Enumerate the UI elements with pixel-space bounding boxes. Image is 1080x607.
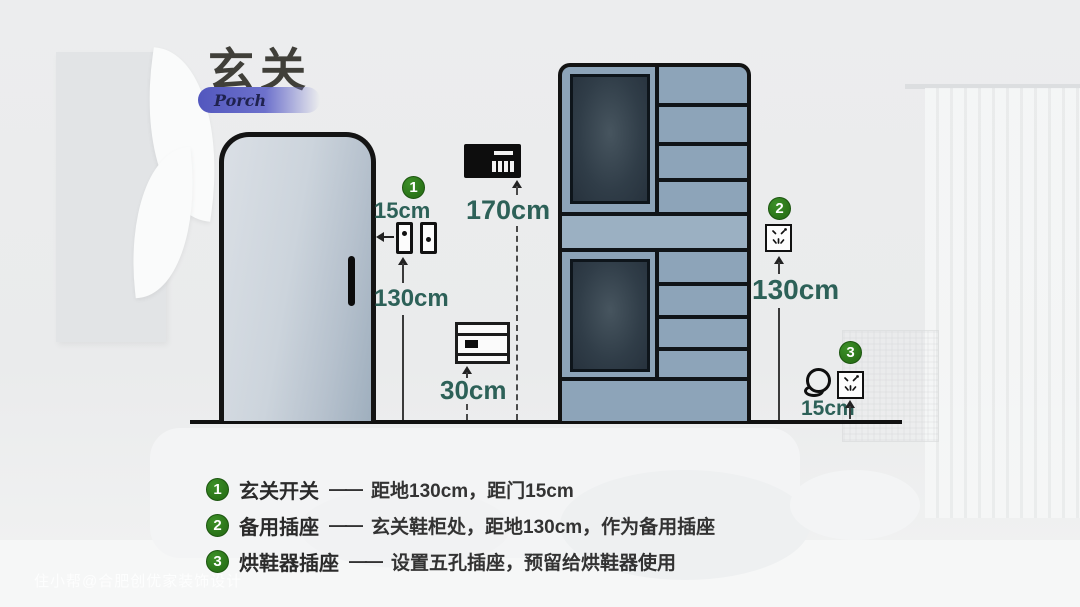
legend-row-1: 1 玄关开关 —— 距地130cm，距门15cm: [206, 475, 574, 504]
cabinet-glass-door-bottom: [570, 259, 650, 372]
socket-holes: [767, 226, 790, 250]
legend-label: 备用插座: [239, 511, 319, 540]
legend-desc: 距地130cm，距门15cm: [371, 476, 574, 503]
legend-label: 玄关开关: [239, 475, 319, 504]
dim-doorbell-height: 170cm: [466, 195, 550, 226]
marker-1-number: 1: [409, 179, 417, 196]
cabinet-shelf-line: [655, 315, 747, 319]
gap-arrow-line: [382, 236, 394, 238]
shoe-cabinet: [558, 63, 751, 421]
legend-dash: ——: [329, 479, 361, 500]
legend-dash: ——: [329, 515, 361, 536]
wall-switch-icon: [396, 222, 413, 254]
five-hole-socket-icon: [765, 224, 792, 252]
legend-number: 2: [213, 517, 221, 534]
legend-number: 1: [213, 481, 221, 498]
subtitle-text: Porch: [214, 91, 266, 110]
socket-box-icon: [455, 322, 510, 364]
legend-dash: ——: [349, 551, 381, 572]
dim-dash-line: [516, 226, 518, 420]
legend-row-2: 2 备用插座 —— 玄关鞋柜处，距地130cm，作为备用插座: [206, 511, 715, 540]
cabinet-middle-band: [562, 216, 747, 248]
cabinet-divider: [655, 67, 659, 212]
legend-marker-2: 2: [206, 514, 229, 537]
legend-label: 烘鞋器插座: [239, 547, 339, 576]
vertical-blinds: [925, 88, 1080, 518]
porch-infographic: 玄关 Porch 1 15cm 130cm: [0, 0, 1080, 607]
dim-socket2-height: 130cm: [752, 274, 839, 306]
box-slot: [465, 340, 478, 348]
wall-switch-icon: [420, 222, 437, 254]
cabinet-shelf-line: [562, 248, 747, 252]
doorbell-screen: [494, 151, 513, 155]
legend-row-3: 3 烘鞋器插座 —— 设置五孔插座，预留给烘鞋器使用: [206, 547, 676, 576]
marker-3-badge: 3: [839, 341, 862, 364]
dim-line: [402, 315, 404, 420]
dim-line: [402, 263, 404, 283]
shoe-dryer-icon: [806, 368, 831, 393]
cabinet-shelf-line: [655, 347, 747, 351]
door-handle: [348, 256, 355, 306]
legend-marker-1: 1: [206, 478, 229, 501]
socket-holes: [839, 373, 862, 397]
subtitle-badge: Porch: [198, 87, 320, 113]
cabinet-shelf-line: [655, 142, 747, 146]
switch-dot: [426, 237, 431, 242]
dim-line: [778, 308, 780, 420]
cabinet-shelf-line: [655, 282, 747, 286]
marker-3-number: 3: [846, 344, 854, 361]
side-table: [790, 470, 920, 540]
watermark: 住小帮@合肥创优家装饰设计: [34, 570, 242, 591]
dim-door-gap: 15cm: [374, 198, 430, 224]
doorbell-keys: [492, 161, 514, 172]
dim-switch-height: 130cm: [374, 285, 449, 313]
switch-dot: [402, 231, 407, 236]
cabinet-glass-door-top: [570, 74, 650, 204]
dim-line: [778, 262, 780, 274]
cabinet-shelf-line: [655, 178, 747, 182]
dim-box-height: 30cm: [440, 375, 507, 406]
box-line: [458, 353, 507, 356]
marker-2-badge: 2: [768, 197, 791, 220]
legend-desc: 玄关鞋柜处，距地130cm，作为备用插座: [371, 512, 715, 539]
marker-2-number: 2: [775, 200, 783, 217]
five-hole-socket-icon: [837, 371, 864, 399]
dim-line: [849, 406, 851, 419]
cabinet-shelf-line: [655, 103, 747, 107]
legend-number: 3: [213, 553, 221, 570]
cabinet-shelf-line: [562, 377, 747, 381]
box-line: [458, 333, 507, 336]
dim-dash-line: [516, 186, 518, 195]
dim-dash-line: [466, 404, 468, 420]
cabinet-shelf-line: [562, 212, 747, 216]
marker-1-badge: 1: [402, 176, 425, 199]
legend-desc: 设置五孔插座，预留给烘鞋器使用: [391, 548, 676, 575]
doorbell-panel-icon: [464, 144, 521, 178]
